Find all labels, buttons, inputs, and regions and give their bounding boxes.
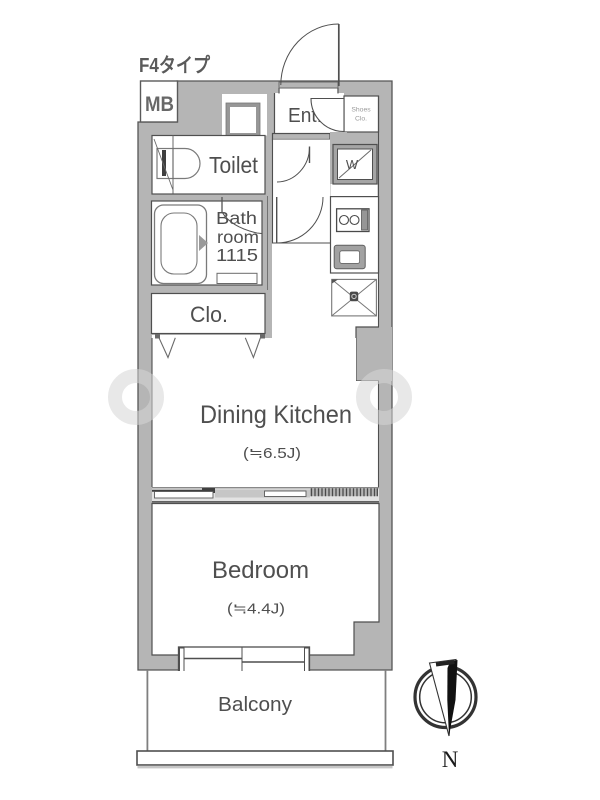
svg-text:Balcony: Balcony [218,694,292,716]
svg-text:MB: MB [145,93,174,116]
svg-text:F4タイプ: F4タイプ [139,54,211,77]
svg-text:room: room [217,227,259,247]
svg-text:Dining Kitchen: Dining Kitchen [200,401,352,429]
svg-text:Bedroom: Bedroom [212,557,309,584]
svg-text:Clo.: Clo. [355,116,367,123]
svg-text:N: N [442,747,459,772]
svg-text:Toilet: Toilet [209,152,259,178]
svg-text:Shoes: Shoes [351,107,371,114]
svg-text:(≒6.5J): (≒6.5J) [243,445,301,462]
svg-text:W: W [346,157,359,172]
svg-text:Clo.: Clo. [190,302,228,327]
svg-text:(≒4.4J): (≒4.4J) [227,601,285,618]
svg-text:1115: 1115 [216,245,258,265]
